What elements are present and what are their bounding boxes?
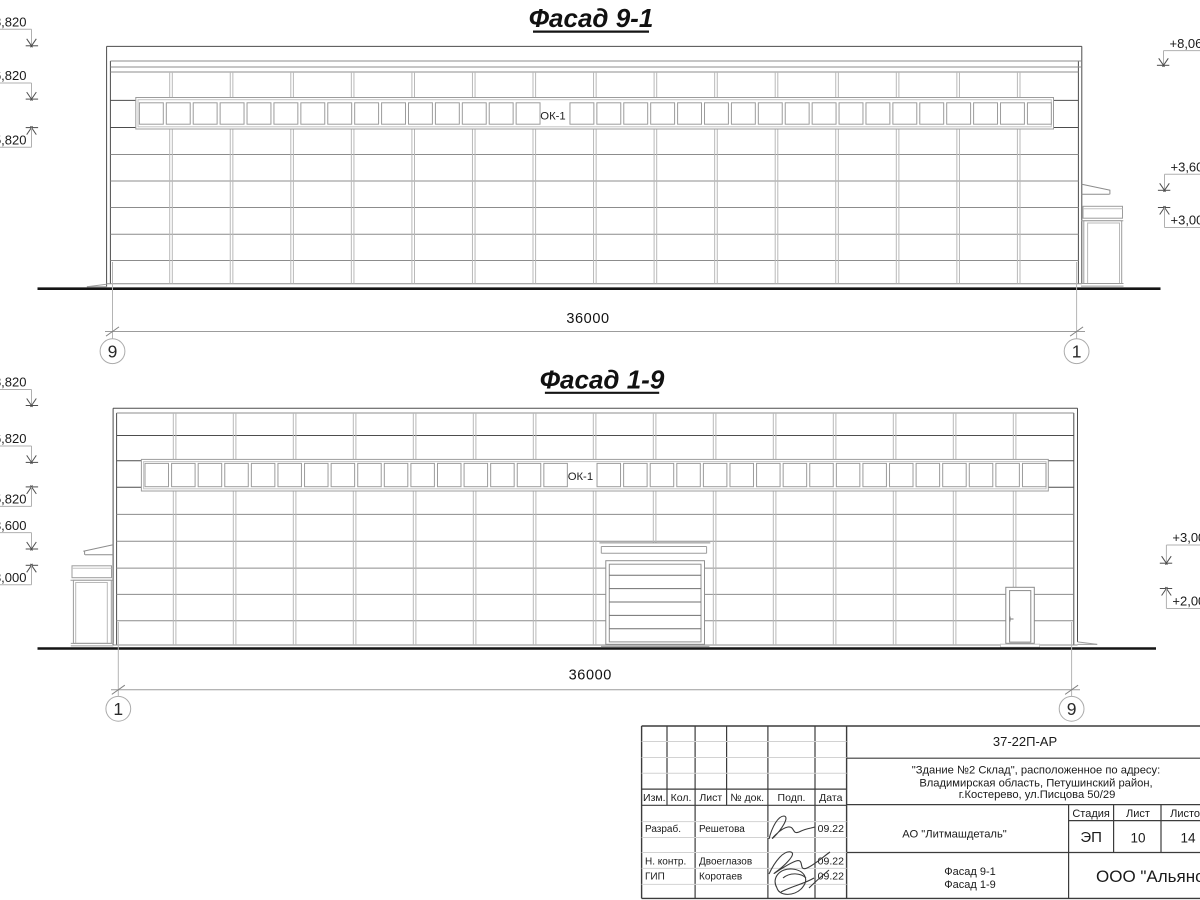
svg-text:Изм.: Изм. [643,792,666,804]
svg-text:36000: 36000 [569,668,612,684]
svg-text:+3,600: +3,600 [1171,159,1200,174]
svg-text:+3,000: +3,000 [1171,213,1200,228]
svg-text:5,820: 5,820 [0,132,27,147]
svg-text:Дата: Дата [819,792,842,804]
svg-text:6,820: 6,820 [0,431,27,446]
svg-text:8,820: 8,820 [0,375,27,390]
svg-text:ОК-1: ОК-1 [568,471,593,483]
svg-text:5,820: 5,820 [0,492,27,507]
svg-text:09.22: 09.22 [818,823,844,835]
svg-text:Фасад 9-1: Фасад 9-1 [944,866,995,878]
svg-text:№ док.: № док. [730,792,764,804]
svg-text:09.22: 09.22 [818,856,844,868]
svg-text:Разраб.: Разраб. [645,823,681,835]
svg-text:Фасад 1-9: Фасад 1-9 [540,365,665,395]
svg-text:Стадия: Стадия [1072,808,1110,820]
svg-text:ЭП: ЭП [1080,829,1102,846]
svg-text:ОК-1: ОК-1 [540,111,565,123]
svg-text:ГИП: ГИП [645,872,665,883]
svg-text:1: 1 [1072,341,1082,361]
svg-text:Коротаев: Коротаев [699,872,742,883]
svg-text:Подп.: Подп. [778,792,806,804]
svg-text:10: 10 [1130,830,1145,845]
svg-text:ООО "Альянс": ООО "Альянс" [1096,867,1200,886]
svg-text:+2,000: +2,000 [1172,594,1200,609]
svg-text:Владимирская область, Петушинс: Владимирская область, Петушинский район, [919,777,1152,789]
svg-text:36000: 36000 [566,311,609,327]
svg-text:АО "Литмашдеталь": АО "Литмашдеталь" [902,829,1007,841]
svg-text:Решетова: Решетова [699,824,745,835]
svg-text:9: 9 [108,341,118,361]
svg-text:+8,060: +8,060 [1170,36,1200,51]
svg-text:9: 9 [1067,699,1077,719]
svg-text:Фасад 1-9: Фасад 1-9 [944,879,995,891]
svg-text:6,820: 6,820 [0,68,27,83]
svg-text:8,820: 8,820 [0,15,27,30]
svg-text:3,600: 3,600 [0,518,27,533]
svg-text:Н. контр.: Н. контр. [645,857,686,868]
svg-text:37-22П-АР: 37-22П-АР [993,734,1057,749]
svg-text:Кол.: Кол. [671,792,692,804]
svg-text:г.Костерево, ул.Писцова 50/29: г.Костерево, ул.Писцова 50/29 [959,789,1116,801]
svg-text:Фасад 9-1: Фасад 9-1 [529,3,654,33]
svg-text:Лист: Лист [1126,808,1150,820]
svg-text:Листов: Листов [1170,808,1200,820]
svg-text:1: 1 [113,699,123,719]
svg-text:Лист: Лист [699,792,722,804]
svg-text:"Здание №2 Склад", расположенн: "Здание №2 Склад", расположенное по адре… [912,765,1160,777]
svg-text:+3,000: +3,000 [1172,530,1200,545]
svg-text:14: 14 [1180,830,1196,845]
svg-text:Двоеглазов: Двоеглазов [699,857,752,868]
svg-text:3,000: 3,000 [0,570,27,585]
